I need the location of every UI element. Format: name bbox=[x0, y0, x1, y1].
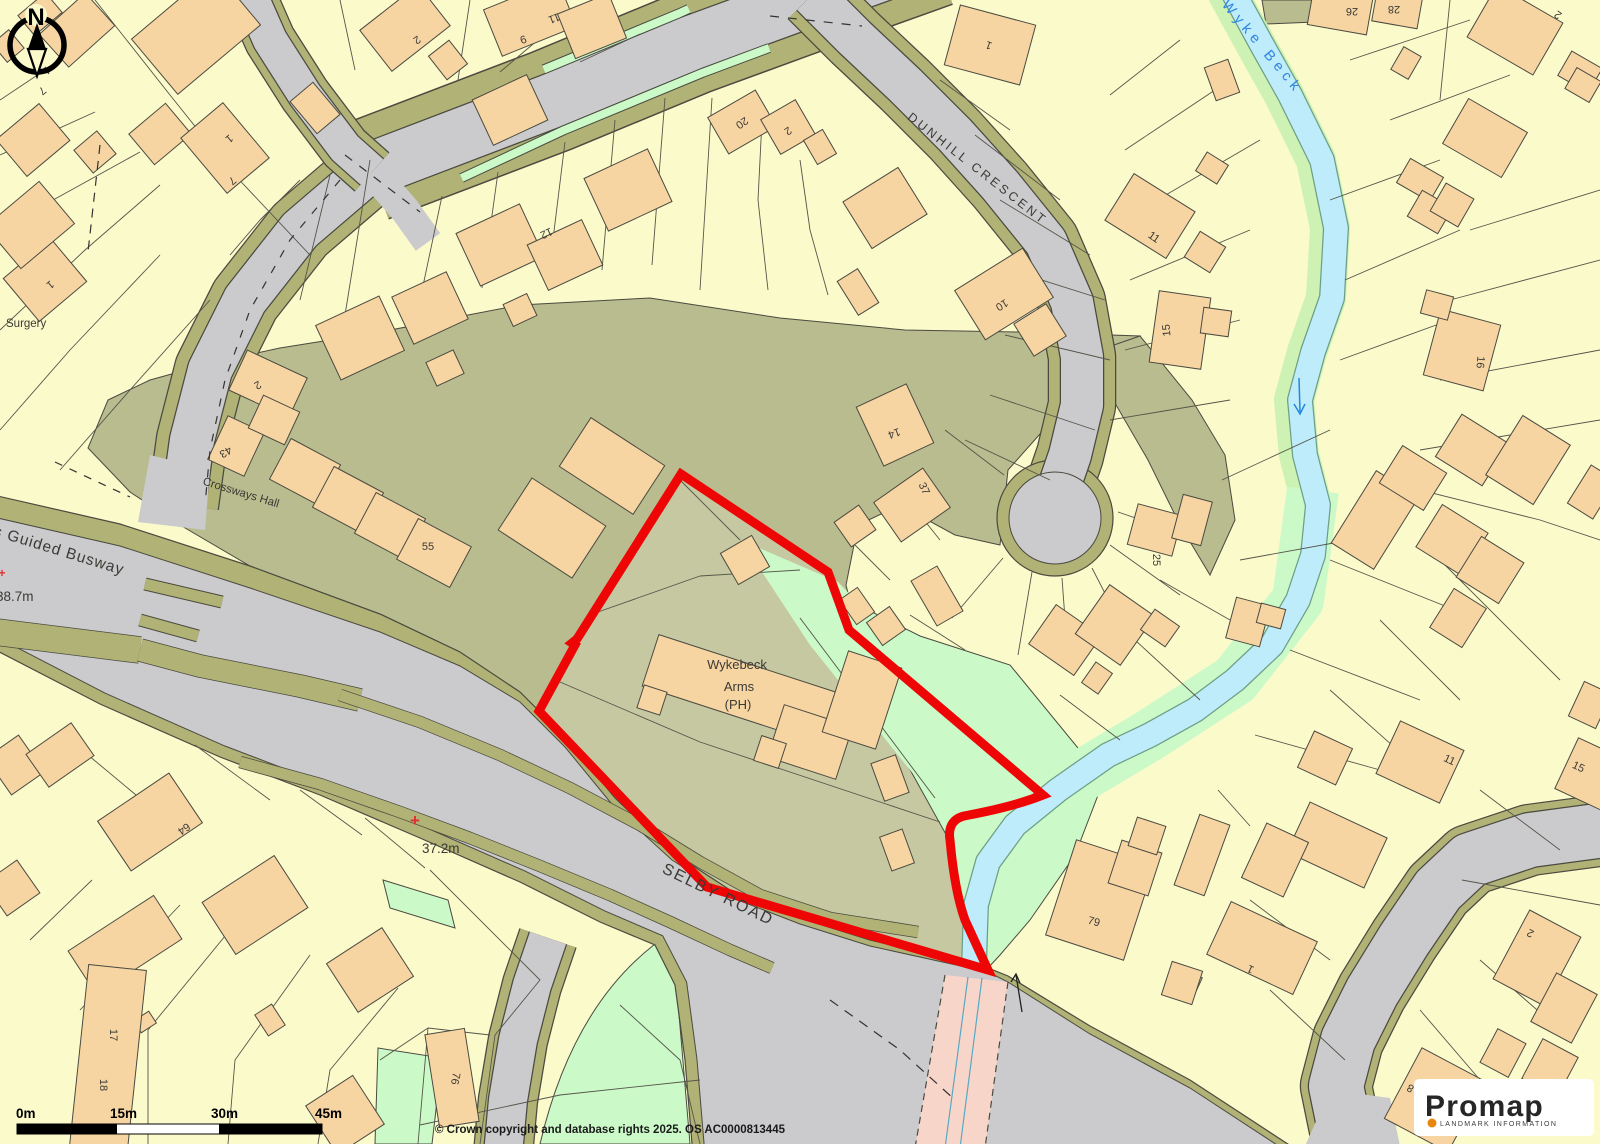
svg-text:Arms: Arms bbox=[724, 679, 755, 694]
svg-text:25: 25 bbox=[1150, 554, 1162, 566]
svg-text:0m: 0m bbox=[16, 1106, 36, 1121]
svg-text:17: 17 bbox=[107, 1029, 119, 1041]
svg-text:18: 18 bbox=[97, 1079, 109, 1091]
svg-text:+: + bbox=[410, 811, 420, 830]
svg-text:26: 26 bbox=[1346, 5, 1358, 17]
svg-text:55: 55 bbox=[422, 541, 434, 553]
svg-text:N: N bbox=[27, 4, 44, 31]
svg-text:© Crown copyright and database: © Crown copyright and database rights 20… bbox=[435, 1124, 786, 1136]
svg-text:28: 28 bbox=[1388, 3, 1400, 15]
svg-text:Promap: Promap bbox=[1425, 1090, 1544, 1123]
svg-text:Surgery: Surgery bbox=[6, 318, 47, 330]
svg-text:45m: 45m bbox=[315, 1106, 342, 1121]
svg-text:+: + bbox=[0, 566, 6, 580]
svg-text:LANDMARK INFORMATION: LANDMARK INFORMATION bbox=[1440, 1121, 1557, 1128]
svg-text:Wykebeck: Wykebeck bbox=[707, 657, 767, 672]
svg-text:76: 76 bbox=[448, 1071, 462, 1085]
svg-text:30m: 30m bbox=[211, 1106, 238, 1121]
svg-text:(PH): (PH) bbox=[725, 697, 752, 712]
svg-text:37.2m: 37.2m bbox=[422, 841, 460, 856]
svg-text:15: 15 bbox=[1161, 324, 1174, 337]
svg-text:16: 16 bbox=[1473, 356, 1486, 369]
svg-text:38.7m: 38.7m bbox=[0, 589, 34, 604]
svg-text:15m: 15m bbox=[110, 1106, 137, 1121]
